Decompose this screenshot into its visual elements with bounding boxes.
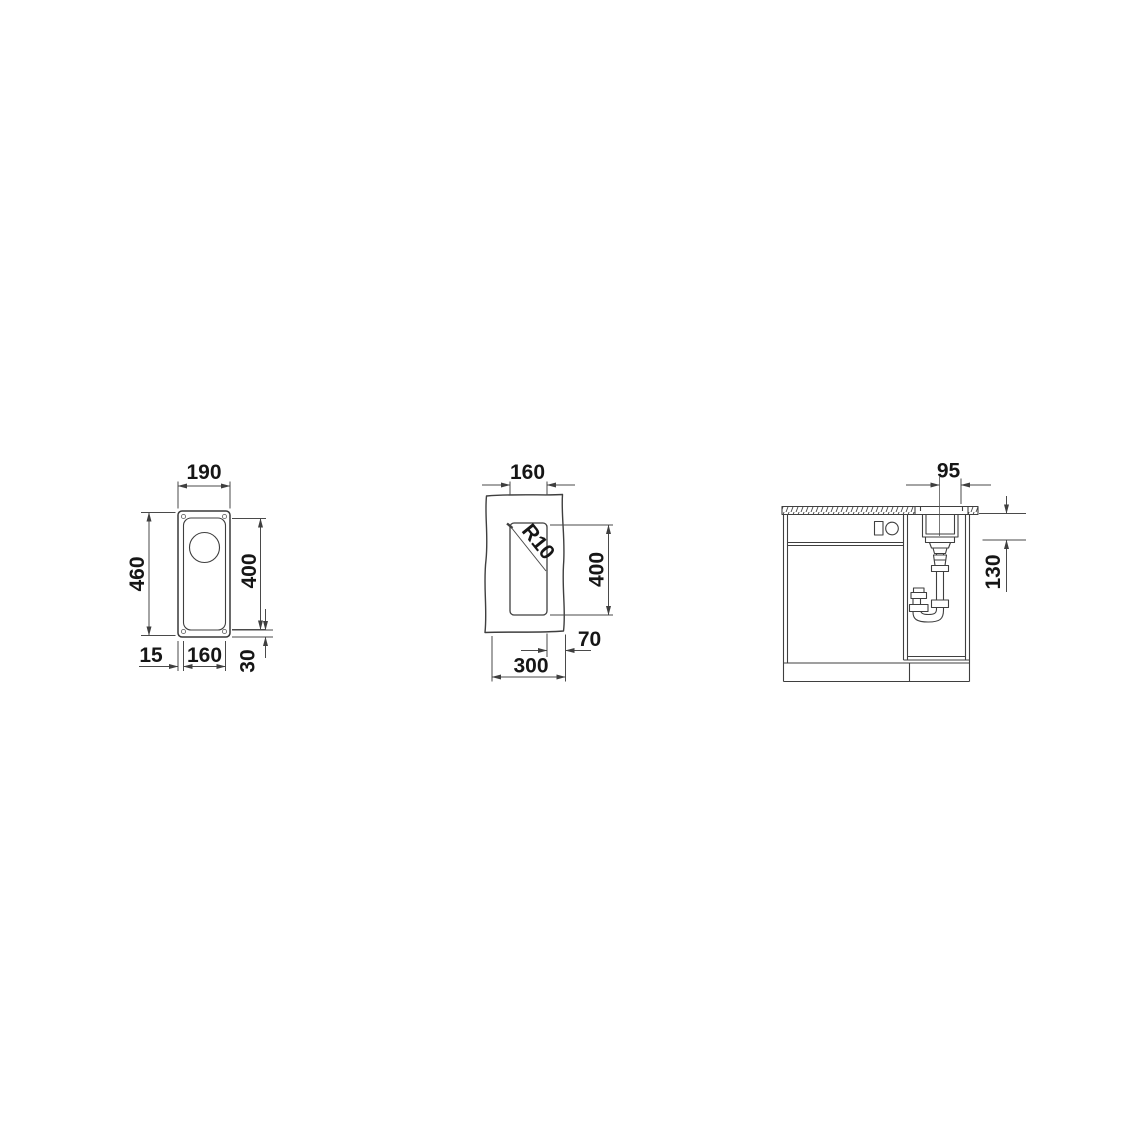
dimension-overall-depth: 460 <box>126 513 176 636</box>
drawer-divider <box>788 543 904 546</box>
dim-label-rim-left: 15 <box>139 644 163 667</box>
dimension-drain-offset: 95 <box>906 460 991 505</box>
sink-bowl-section <box>910 477 959 622</box>
dim-label-cutout-width: 160 <box>510 461 545 484</box>
dimension-cutout-length: 400 <box>550 525 613 615</box>
dimension-bowl-depth-below-worktop: 130 <box>979 496 1026 592</box>
cabinet-left-side <box>784 515 788 682</box>
trap-cap <box>911 593 927 599</box>
dim-label-overall-depth: 460 <box>126 556 149 591</box>
worktop-cutout-drawing: R10 160 400 70 300 <box>482 461 613 682</box>
dim-label-overall-width: 190 <box>186 461 221 484</box>
worktop-hatch-right <box>968 507 978 515</box>
plumbing-bay-bottom <box>904 657 970 661</box>
worktop-section-outline: R10 <box>485 495 564 633</box>
coupling-nut-upper <box>932 566 949 572</box>
bowl-inner-wall <box>926 515 955 535</box>
plumbing-bay-left-wall <box>904 515 908 661</box>
dim-label-corner-radius: R10 <box>517 520 559 564</box>
dim-label-cutout-length: 400 <box>586 552 609 587</box>
drain-hole <box>190 533 220 563</box>
worktop-piece <box>485 495 564 633</box>
dim-label-bowl-depth-below-worktop: 130 <box>982 554 1005 589</box>
dim-label-rim-bottom: 30 <box>237 649 260 672</box>
sink-dimension-diagram: 190 460 400 15 160 30 <box>0 0 1140 1140</box>
plinth <box>784 663 970 682</box>
coupling-nut-lower <box>932 600 949 608</box>
trap-cap-top <box>914 588 925 593</box>
waste-pipe-and-trap <box>910 566 949 623</box>
dimension-cabinet-width: 300 <box>492 636 566 682</box>
dimension-rim-bottom: 30 <box>232 609 273 673</box>
dim-label-cabinet-width: 300 <box>513 655 548 678</box>
knob <box>886 522 899 535</box>
strainer-assembly <box>926 537 955 566</box>
vent-slot <box>875 522 884 536</box>
coupling-nut-trap <box>910 605 929 612</box>
dim-label-drain-offset: 95 <box>937 460 961 483</box>
sink-top-view-drawing: 190 460 400 15 160 30 <box>126 461 273 673</box>
sink-bowl-edge <box>184 518 226 630</box>
dimension-bowl-depth: 400 <box>232 519 266 630</box>
plumbing-bay-right-wall <box>966 515 970 682</box>
dim-label-bowl-width: 160 <box>187 644 222 667</box>
technical-drawing-canvas: 190 460 400 15 160 30 <box>0 0 1140 1140</box>
sink-outer-rim <box>178 511 230 637</box>
dimension-bowl-width: 160 <box>184 641 226 671</box>
dimension-rim-left: 15 <box>139 641 184 671</box>
worktop-hatch-left <box>782 507 915 515</box>
sink-outline <box>178 511 230 637</box>
sink-rim-seat <box>915 507 968 515</box>
dim-label-bowl-depth: 400 <box>238 553 261 588</box>
installation-side-view-drawing: 95 130 <box>782 460 1026 682</box>
dim-label-edge-distance: 70 <box>578 628 601 651</box>
dimension-overall-width: 190 <box>178 461 230 509</box>
worktop-section <box>782 507 978 515</box>
dimension-cutout-width: 160 <box>482 461 575 496</box>
